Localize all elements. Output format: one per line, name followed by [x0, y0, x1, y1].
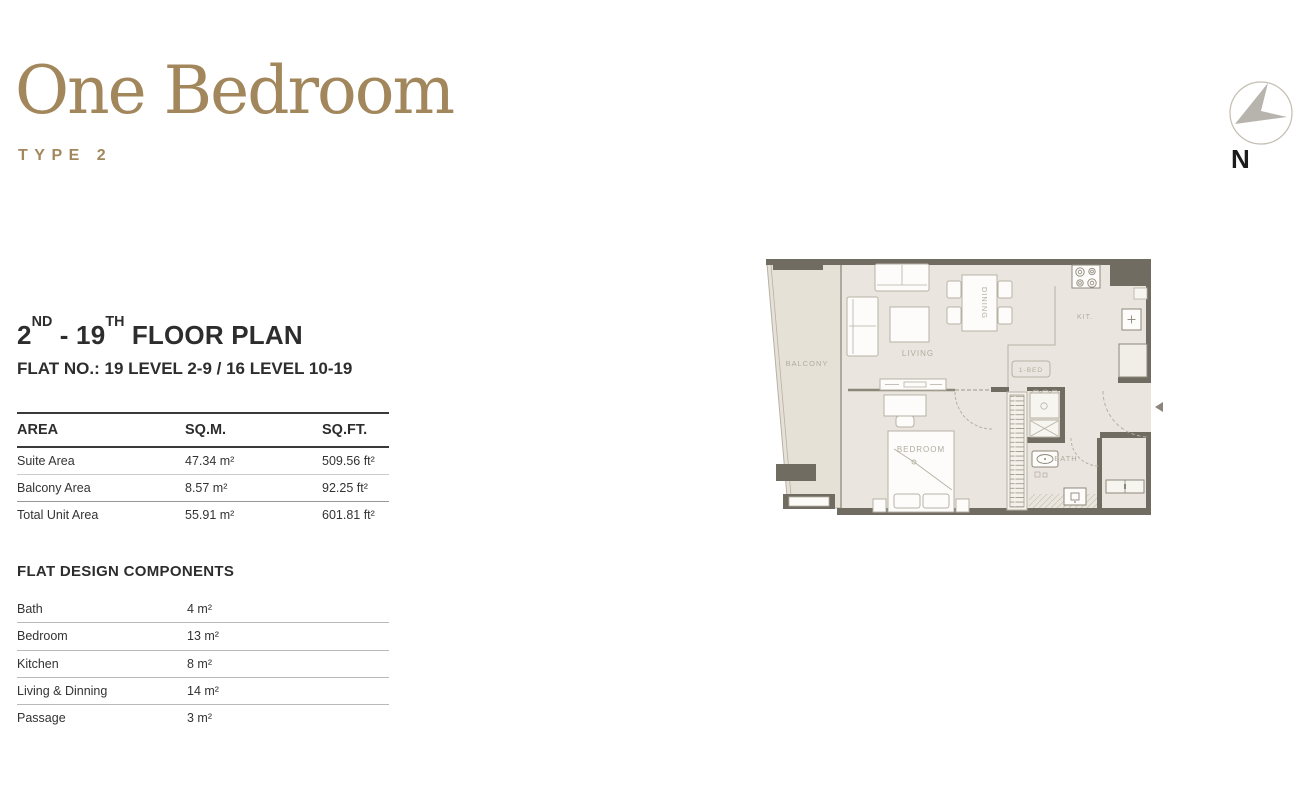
table-row: Suite Area 47.34 m² 509.56 ft²	[17, 448, 389, 475]
stove-icon	[1072, 265, 1100, 288]
component-value: 8 m²	[187, 657, 212, 671]
table-row: Total Unit Area 55.91 m² 601.81 ft²	[17, 502, 389, 528]
row-label: Total Unit Area	[17, 508, 185, 522]
components-heading: FLAT DESIGN COMPONENTS	[17, 563, 234, 580]
row-sqft: 92.25 ft²	[322, 481, 389, 495]
unit-type-label: TYPE 2	[18, 147, 112, 165]
table-row: Balcony Area 8.57 m² 92.25 ft²	[17, 475, 389, 502]
component-label: Passage	[17, 711, 66, 725]
col-header-area: AREA	[17, 422, 185, 438]
north-label: N	[1231, 144, 1250, 174]
row-label: Balcony Area	[17, 481, 185, 495]
col-header-sqft: SQ.FT.	[322, 422, 389, 438]
component-value: 13 m²	[187, 629, 219, 643]
room-label-kitchen: KIT.	[1077, 314, 1093, 321]
area-table: AREA SQ.M. SQ.FT. Suite Area 47.34 m² 50…	[17, 412, 389, 528]
utility-fixtures	[1030, 390, 1059, 437]
area-table-header: AREA SQ.M. SQ.FT.	[17, 412, 389, 448]
balcony-bench	[789, 497, 829, 506]
list-item: Bedroom 13 m²	[17, 623, 389, 650]
components-list: Bath 4 m² Bedroom 13 m² Kitchen 8 m² Liv…	[17, 596, 389, 731]
col-header-sqm: SQ.M.	[185, 422, 322, 438]
north-arrow: N	[1228, 78, 1298, 174]
floor-range-ordinal: ND	[32, 314, 53, 330]
page-title: One Bedroom	[15, 56, 453, 125]
row-sqft: 601.81 ft²	[322, 508, 389, 522]
floor-plan-page: One Bedroom TYPE 2 N 2ND - 19TH FLOOR PL…	[0, 0, 1308, 786]
list-item: Bath 4 m²	[17, 596, 389, 623]
unit-badge-label: 1-BED	[1019, 367, 1043, 374]
flat-number-line: FLAT NO.: 19 LEVEL 2-9 / 16 LEVEL 10-19	[17, 359, 352, 379]
room-label-balcony: BALCONY	[786, 359, 829, 368]
floor-range-part: FLOOR PLAN	[124, 320, 302, 350]
list-item: Kitchen 8 m²	[17, 651, 389, 678]
fridge-icon	[1119, 344, 1147, 377]
component-label: Kitchen	[17, 657, 59, 671]
wardrobe	[1007, 392, 1027, 510]
north-arrow-icon: N	[1228, 78, 1298, 174]
row-sqft: 509.56 ft²	[322, 454, 389, 468]
component-value: 4 m²	[187, 602, 212, 616]
floor-range-ordinal: TH	[105, 314, 124, 330]
wall-cabinet	[1134, 288, 1147, 299]
room-label-bath: BATH	[1054, 454, 1077, 463]
floor-plan-svg: BALCONY LIVING DINING KIT. BEDROOM BATH …	[763, 256, 1163, 526]
component-label: Living & Dinning	[17, 684, 107, 698]
list-item: Passage 3 m²	[17, 705, 389, 731]
list-item: Living & Dinning 14 m²	[17, 678, 389, 705]
entry-direction-icon	[1155, 402, 1163, 412]
room-label-living: LIVING	[902, 349, 934, 358]
row-sqm: 8.57 m²	[185, 481, 322, 495]
row-sqm: 55.91 m²	[185, 508, 322, 522]
row-label: Suite Area	[17, 454, 185, 468]
closet-cabinet	[1106, 480, 1144, 493]
floor-range-part: 2	[17, 320, 32, 350]
component-value: 14 m²	[187, 684, 219, 698]
shower-floor	[1029, 494, 1097, 508]
room-label-bedroom: BEDROOM	[897, 445, 945, 454]
component-label: Bedroom	[17, 629, 68, 643]
floor-plan-drawing: BALCONY LIVING DINING KIT. BEDROOM BATH …	[763, 256, 1163, 526]
component-label: Bath	[17, 602, 43, 616]
row-sqm: 47.34 m²	[185, 454, 322, 468]
room-label-dining: DINING	[980, 287, 989, 319]
floor-range-heading: 2ND - 19TH FLOOR PLAN	[17, 320, 303, 351]
component-value: 3 m²	[187, 711, 212, 725]
sink-plus-icon	[1122, 309, 1141, 330]
floor-range-part: - 19	[52, 320, 105, 350]
